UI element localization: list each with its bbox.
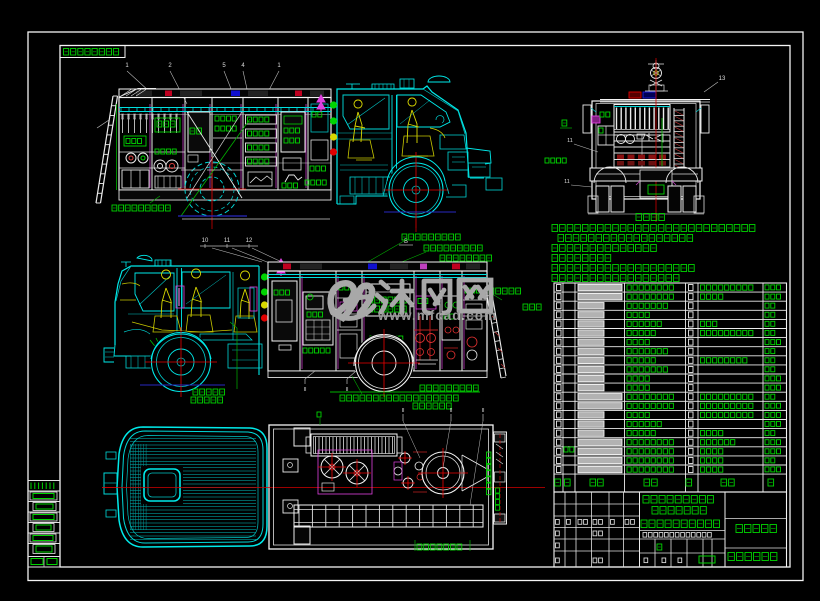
svg-text:II: II [481,408,485,414]
svg-text:13: 13 [719,76,726,82]
svg-text:10: 10 [202,238,209,244]
svg-text:II: II [303,387,307,393]
svg-text:11: 11 [567,138,573,144]
svg-text:12: 12 [246,238,253,244]
svg-text:www.mfcad.com: www.mfcad.com [377,308,497,323]
svg-text:II: II [401,408,405,414]
svg-text:II: II [345,387,349,393]
svg-text:11: 11 [224,238,231,244]
svg-text:11: 11 [564,179,570,185]
svg-text:II: II [449,408,453,414]
